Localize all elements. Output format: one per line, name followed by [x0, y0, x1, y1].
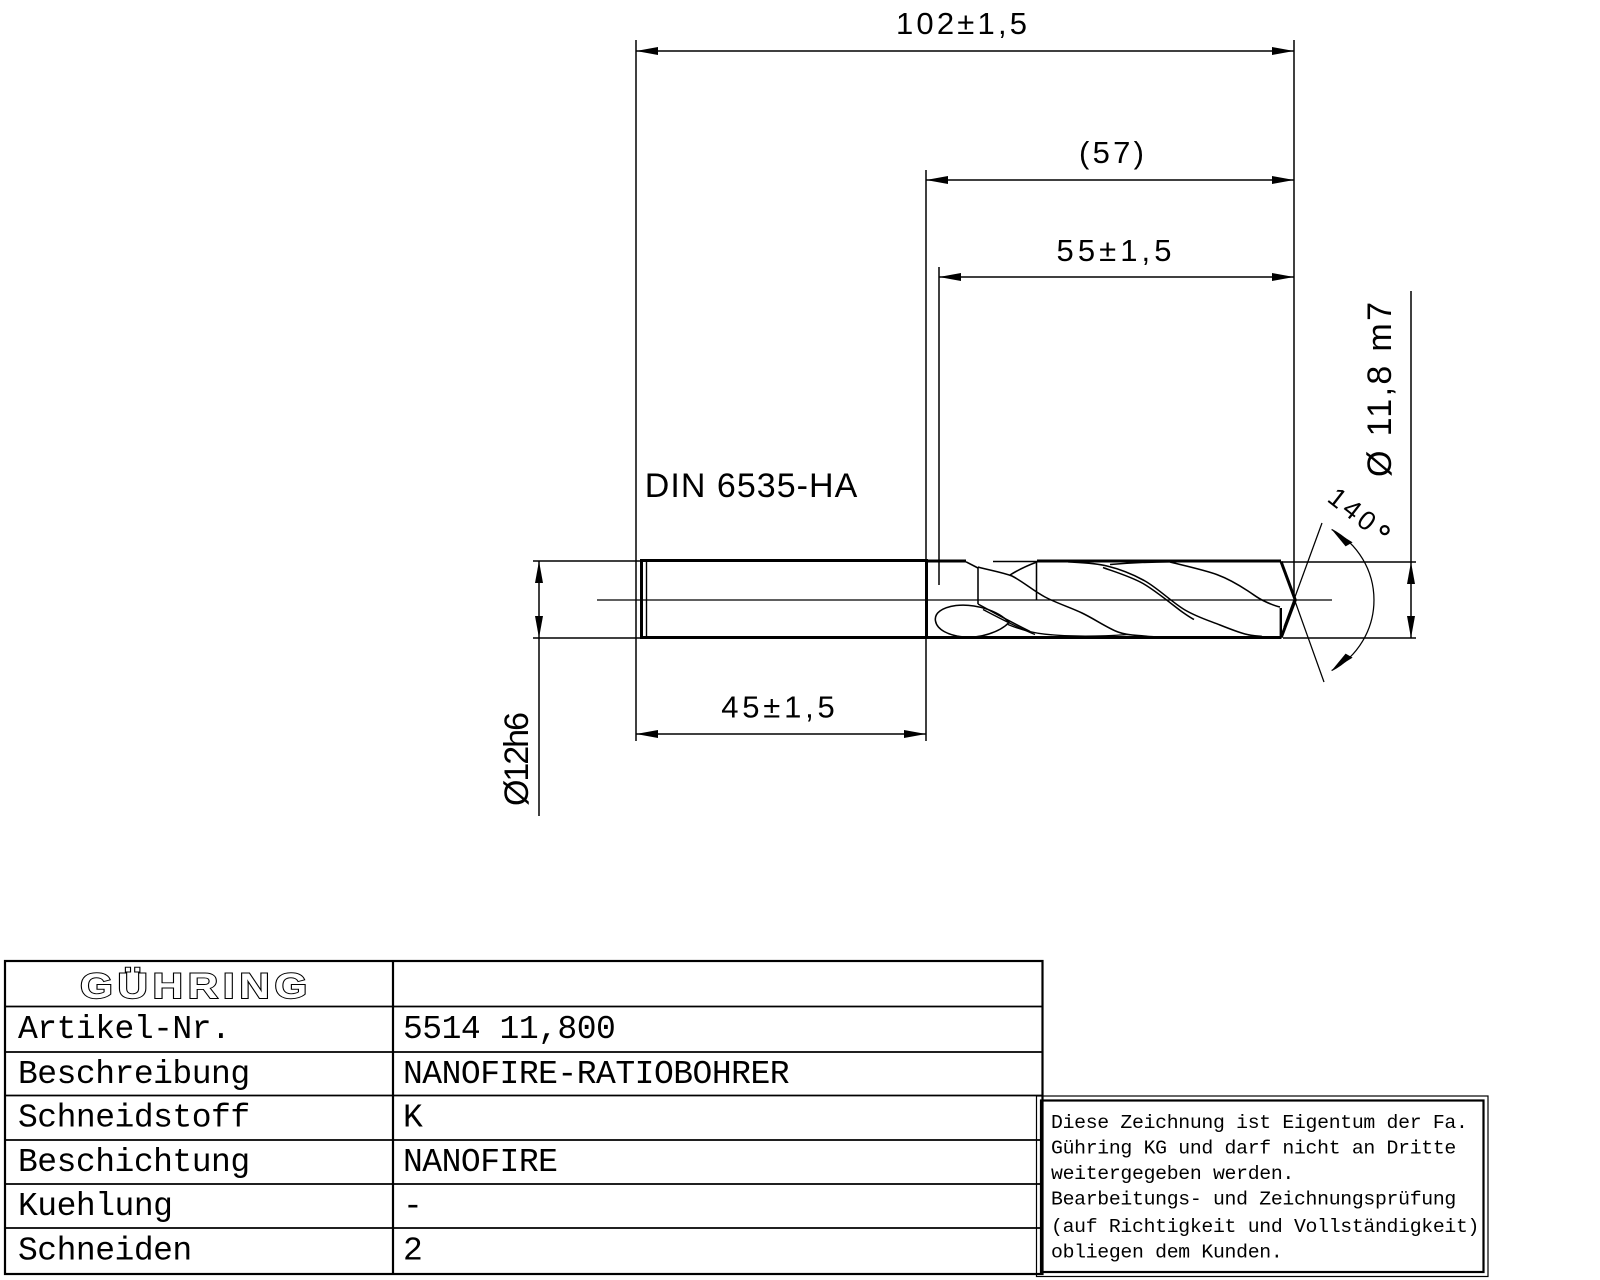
svg-text:(auf Richtigkeit und Vollständ: (auf Richtigkeit und Vollständigkeit) [1051, 1216, 1479, 1238]
svg-text:obliegen dem Kunden.: obliegen dem Kunden. [1051, 1242, 1282, 1264]
svg-text:GÜHRING: GÜHRING [80, 967, 312, 1006]
svg-text:Kuehlung: Kuehlung [18, 1188, 172, 1225]
svg-text:Diese Zeichnung ist Eigentum d: Diese Zeichnung ist Eigentum der Fa. [1051, 1112, 1468, 1134]
svg-text:-: - [403, 1188, 422, 1225]
svg-text:5514 11,800: 5514 11,800 [403, 1011, 615, 1048]
svg-text:DIN 6535-HA: DIN 6535-HA [645, 467, 858, 505]
svg-text:Beschreibung: Beschreibung [18, 1056, 250, 1093]
svg-text:Ø12h6: Ø12h6 [498, 712, 536, 806]
svg-text:Schneidstoff: Schneidstoff [18, 1100, 250, 1137]
svg-text:2: 2 [403, 1232, 422, 1269]
svg-text:45±1,5: 45±1,5 [721, 690, 835, 725]
svg-text:Ø 11,8 m7: Ø 11,8 m7 [1361, 302, 1399, 477]
svg-text:NANOFIRE-RATIOBOHRER: NANOFIRE-RATIOBOHRER [403, 1056, 789, 1093]
svg-text:weitergegeben werden.: weitergegeben werden. [1051, 1163, 1294, 1185]
svg-text:Beschichtung: Beschichtung [18, 1144, 250, 1181]
svg-text:K: K [403, 1100, 423, 1137]
svg-text:NANOFIRE: NANOFIRE [403, 1144, 557, 1181]
svg-text:Bearbeitungs- und Zeichnungspr: Bearbeitungs- und Zeichnungsprüfung [1051, 1189, 1456, 1211]
svg-text:Artikel-Nr.: Artikel-Nr. [18, 1011, 230, 1048]
svg-text:Gühring KG und darf nicht an D: Gühring KG und darf nicht an Dritte [1051, 1138, 1456, 1160]
svg-text:Schneiden: Schneiden [18, 1232, 192, 1269]
